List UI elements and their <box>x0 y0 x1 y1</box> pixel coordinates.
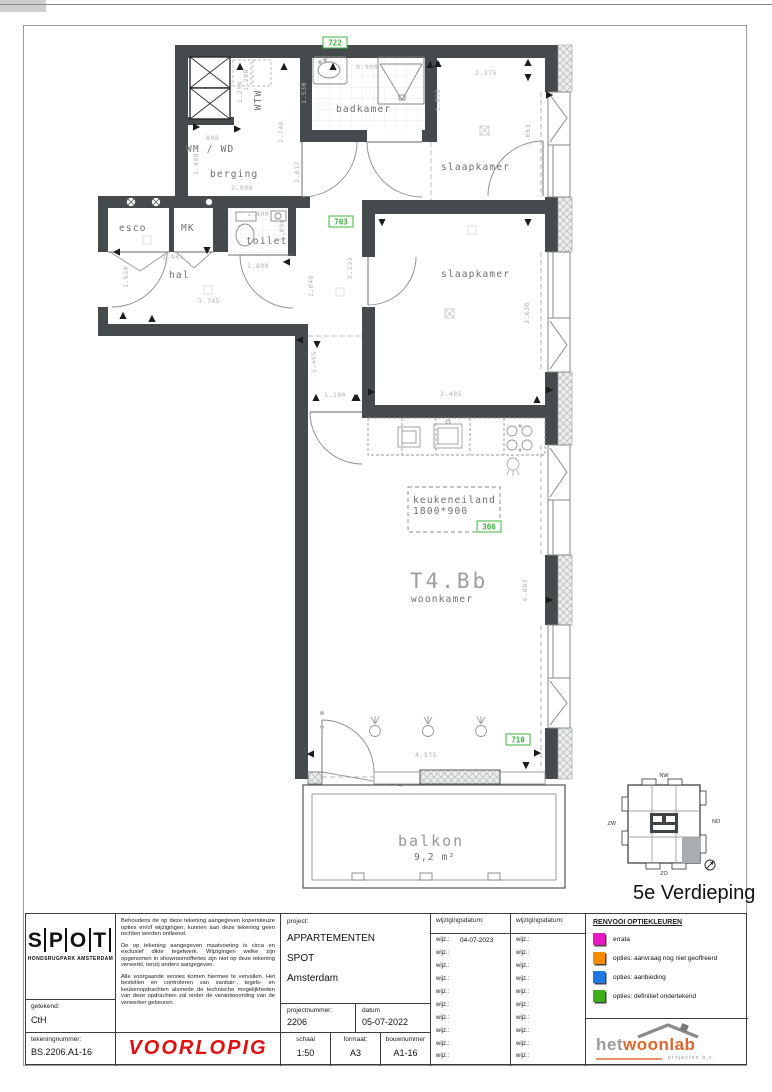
renvooi-title: RENVOOI OPTIEKLEUREN <box>586 914 748 926</box>
wijziging-row: wijz.: <box>511 1024 585 1037</box>
north-arrow-icon <box>705 860 715 870</box>
project-line: Amsterdam <box>287 973 424 984</box>
datum-label: datum <box>362 1007 424 1014</box>
dimension-label: 808 <box>206 134 219 142</box>
room-label-hal: hal <box>169 270 190 281</box>
wijziging-row-label: wijz.: <box>436 989 460 995</box>
dimension-label: 2.017 <box>293 161 301 183</box>
disclaimer-paragraph: Alle voorgaande versies komen hiermee te… <box>121 974 275 1007</box>
wijziging-row-label: wijz.: <box>516 950 540 956</box>
spot-logo-letter: P <box>49 930 63 952</box>
window-opening-icon <box>550 321 567 369</box>
datum-cell: datum 05-07-2022 <box>356 1004 431 1033</box>
project-cell: project: APPARTEMENTEN SPOT Amsterdam <box>281 914 431 1004</box>
shaft <box>190 57 230 119</box>
dimension-label: 1.890 <box>247 262 269 270</box>
legend-item: opties: definitief ondertekend <box>593 990 748 1002</box>
legend-color-swatch <box>593 971 605 983</box>
title-block: SPOT HONDSRUGPARK AMSTERDAM Behoudens de… <box>25 913 747 1065</box>
socket-arrow-icon <box>524 74 531 81</box>
spot-logo-letter: S <box>28 930 42 952</box>
legend-item-label: opties: aanbieding <box>613 974 666 981</box>
dimension-label: 3.485 <box>440 390 462 398</box>
wijzigingen-header: wijzigingsdatum: <box>511 914 585 934</box>
getekend-label: getekend: <box>31 1003 110 1010</box>
label-keuken-size: 1800*900 <box>413 506 468 517</box>
projectnummer-label: projectnummer: <box>287 1007 349 1014</box>
formaat-label: formaat: <box>337 1036 374 1043</box>
label-balkon-area: 9,2 m² <box>414 852 456 863</box>
spot-logo: SPOT <box>26 928 115 952</box>
wijziging-row: wijz.: <box>511 947 585 960</box>
socket-arrow-icon <box>533 396 540 403</box>
wijziging-row: wijz.: <box>431 1024 510 1037</box>
schaal-value: 1:50 <box>287 1048 324 1058</box>
disclaimer-cell: Behoudens de op deze tekening aangegeven… <box>116 914 281 1033</box>
wijziging-row-label: wijz.: <box>516 1041 540 1047</box>
keyplan-highlighted-unit <box>682 837 700 863</box>
kitchen-counter <box>368 418 545 476</box>
wijziging-row: wijz.: <box>511 986 585 999</box>
wijziging-row: wijz.: <box>431 947 510 960</box>
wijziging-row: wijz.:04-07-2023 <box>431 934 510 947</box>
dimension-label: 1.498 <box>192 153 200 175</box>
wijziging-row: wijz.: <box>431 1011 510 1024</box>
woonlab-het: het <box>596 1035 623 1054</box>
dimension-label: 2.748 <box>277 121 285 143</box>
tekeningnummer-cell: tekeningnummer: BS.2206.A1-16 <box>26 1033 116 1066</box>
socket-arrow-icon <box>524 219 531 226</box>
spot-logo-subtitle: HONDSRUGPARK AMSTERDAM <box>26 956 115 962</box>
ceiling-lights <box>143 126 489 737</box>
socket-arrow-icon <box>378 219 385 226</box>
formaat-value: A3 <box>337 1048 374 1058</box>
wijziging-row-label: wijz.: <box>436 1015 460 1021</box>
window-opening-icon <box>550 448 567 497</box>
woonlab-logo: hetwoonlab <box>596 1035 695 1055</box>
voorlopig-stamp: VOORLOPIG <box>116 1033 281 1066</box>
legend-color-swatch <box>593 952 605 964</box>
wijziging-row-label: wijz.: <box>436 1028 460 1034</box>
socket-arrow-icon <box>522 762 529 769</box>
wijziging-row-label: wijz.: <box>516 976 540 982</box>
dimension-label: 1.100 <box>324 391 346 399</box>
unit-title: T4.Bb <box>410 569 488 593</box>
bouwnummer-value: A1-16 <box>383 1048 428 1058</box>
wijziging-row-label: wijz.: <box>516 963 540 969</box>
socket-arrow-icon <box>236 63 243 70</box>
legend-item: errata <box>593 933 748 945</box>
dimension-label: 1.090 <box>278 219 286 241</box>
woonlab-logo-cell: hetwoonlab projecten b.v. <box>586 1019 748 1066</box>
compass-nw: NW <box>659 773 669 779</box>
label-keukeneiland: keukeneiland <box>413 495 496 506</box>
wijziging-row: wijz.: <box>511 1050 585 1063</box>
option-tag-703: 703 <box>334 218 348 227</box>
wijziging-row-label: wijz.: <box>436 963 460 969</box>
window-opening-icon <box>550 681 567 725</box>
wijziging-row-label: wijz.: <box>436 1053 460 1059</box>
socket-arrow-icon <box>283 258 290 265</box>
dimension-label: 3.630 <box>523 302 531 324</box>
dimension-label: 1.465 <box>310 351 318 373</box>
wijziging-row-label: wijz.: <box>516 937 540 943</box>
spot-logo-bar <box>109 928 111 952</box>
room-label-mk: MK <box>181 223 195 234</box>
dimension-label: 1.040 <box>307 275 315 297</box>
option-tags: 722 703 306 710 <box>323 37 530 745</box>
room-label-wtw: WTW <box>253 90 264 111</box>
socket-arrow-icon <box>203 247 210 254</box>
option-tag-306: 306 <box>482 523 496 532</box>
dimension-label: 1.945 <box>162 253 184 261</box>
wijziging-row-label: wijz.: <box>516 1002 540 1008</box>
compass-zo: ZO <box>660 871 668 877</box>
dimension-label: 1.250 <box>236 81 244 103</box>
option-tag-710: 710 <box>511 736 525 745</box>
wijziging-row-label: wijz.: <box>436 976 460 982</box>
dimension-label: 0.900 <box>356 63 378 71</box>
dimension-label: 1.490 <box>247 210 269 218</box>
bouwnummer-label: bouwnummer <box>383 1036 428 1043</box>
compass-no: NO <box>712 819 721 825</box>
room-label-berging: berging <box>210 169 258 180</box>
socket-arrow-icon <box>119 312 126 319</box>
tekeningnummer-value: BS.2206.A1-16 <box>31 1047 110 1057</box>
window-opening-icon <box>550 95 567 142</box>
legend-color-swatch <box>593 990 605 1002</box>
project-label: project: <box>287 918 424 925</box>
spot-logo-bar <box>89 928 91 952</box>
room-label-balkon: balkon <box>398 832 464 850</box>
socket-arrow-icon <box>534 749 541 756</box>
wijziging-row-value: 04-07-2023 <box>460 937 493 944</box>
spot-logo-letter: T <box>93 930 106 952</box>
legend-color-swatch <box>593 933 605 945</box>
wijziging-row-label: wijz.: <box>436 1041 460 1047</box>
tiled-floors <box>228 58 425 253</box>
legend-item-label: opties: aanvraag nog niet geoffreerd <box>613 955 717 962</box>
room-label-slaapkamer-2: slaapkamer <box>441 269 510 280</box>
wijziging-row: wijz.: <box>511 973 585 986</box>
datum-value: 05-07-2022 <box>362 1017 424 1027</box>
tekeningnummer-label: tekeningnummer: <box>31 1036 110 1043</box>
wijziging-row-label: wijz.: <box>516 1015 540 1021</box>
wijziging-row: wijz.: <box>511 960 585 973</box>
socket-arrow-icon <box>234 125 241 132</box>
keyplan: NW ZW NO ZO <box>607 773 721 877</box>
woonlab-underline <box>596 1058 662 1060</box>
dimension-label: 1.530 <box>300 82 308 104</box>
wijziging-row: wijz.: <box>511 1037 585 1050</box>
disclaimer-paragraph: Behoudens de op deze tekening aangegeven… <box>121 918 275 938</box>
wijziging-row: wijz.: <box>511 998 585 1011</box>
wijzigingen-column-1: wijzigingsdatum: wijz.:04-07-2023wijz.:w… <box>431 914 511 1066</box>
compass-zw: ZW <box>607 821 616 827</box>
dimension-label: 2.375 <box>475 69 497 77</box>
projectnummer-cell: projectnummer: 2206 <box>281 1004 356 1033</box>
wijziging-row-label: wijz.: <box>516 1053 540 1059</box>
disclaimer-paragraph: De op tekening aangegeven maatvoering is… <box>121 943 275 969</box>
room-label-badkamer: badkamer <box>336 104 391 115</box>
wijziging-row-label: wijz.: <box>436 1002 460 1008</box>
dimension-label: 1.830 <box>434 89 442 111</box>
wijzigingen-header: wijzigingsdatum: <box>431 914 510 934</box>
room-label-slaapkamer-1: slaapkamer <box>441 162 510 173</box>
floor-title: 5e Verdieping <box>633 882 755 904</box>
dimension-label: 3.745 <box>198 297 220 305</box>
dimension-label: 3.063 <box>524 124 532 146</box>
legend-item: opties: aanvraag nog niet geoffreerd <box>593 952 748 964</box>
wijziging-row: wijz.: <box>431 1037 510 1050</box>
wijziging-row-label: wijz.: <box>516 989 540 995</box>
socket-arrow-icon <box>312 394 319 401</box>
project-line: APPARTEMENTEN <box>287 933 424 944</box>
dimension-label: 1.930 <box>122 266 130 288</box>
wijziging-row-label: wijz.: <box>436 937 460 943</box>
spot-logo-letter: O <box>70 930 86 952</box>
legend-item-label: opties: definitief ondertekend <box>613 993 696 1000</box>
renvooi-legend: RENVOOI OPTIEKLEUREN errataopties: aanvr… <box>586 914 748 1019</box>
dimension-label: 2.908 <box>231 184 253 192</box>
wijziging-row-label: wijz.: <box>436 950 460 956</box>
dimension-label: 5.133 <box>346 257 354 279</box>
getekend-value: CtH <box>31 1015 110 1025</box>
wijziging-row: wijz.: <box>431 973 510 986</box>
wijzigingen-column-2: wijzigingsdatum: wijz.:wijz.:wijz.:wijz.… <box>511 914 586 1066</box>
balcony-sill <box>308 770 545 784</box>
socket-arrow-icon <box>313 341 320 348</box>
floor-plan-drawing: WTW WM / WD berging badkamer slaapkamer … <box>0 0 772 910</box>
project-line: SPOT <box>287 953 424 964</box>
floorplan-sheet: { "plan": { "unit_title": "T4.Bb", "labe… <box>0 0 772 1092</box>
dimension-label: 6.893 <box>521 579 529 601</box>
wijziging-row: wijz.: <box>431 998 510 1011</box>
socket-arrow-icon <box>280 63 287 70</box>
formaat-cell: formaat: A3 <box>331 1033 381 1066</box>
logo-cell: SPOT HONDSRUGPARK AMSTERDAM <box>26 914 116 1000</box>
socket-arrow-icon <box>524 59 531 66</box>
schaal-label: schaal <box>287 1036 324 1043</box>
legend-item-label: errata <box>613 936 630 943</box>
projectnummer-value: 2206 <box>287 1017 349 1027</box>
woonlab-woonlab: woonlab <box>623 1035 695 1054</box>
schaal-cell: schaal 1:50 <box>281 1033 331 1066</box>
wijziging-row: wijz.: <box>431 986 510 999</box>
room-label-woonkamer: woonkamer <box>411 594 473 605</box>
option-tag-722: 722 <box>328 39 342 48</box>
socket-arrow-icon <box>148 315 155 322</box>
legend-item: opties: aanbieding <box>593 971 748 983</box>
spot-logo-bar <box>65 928 67 952</box>
getekend-cell: getekend: CtH <box>26 1000 116 1033</box>
room-label-esco: esco <box>119 223 147 234</box>
wijziging-row-label: wijz.: <box>516 1028 540 1034</box>
wijziging-row: wijz.: <box>431 1050 510 1063</box>
wijziging-row: wijz.: <box>431 960 510 973</box>
wijziging-row: wijz.: <box>511 934 585 947</box>
bouwnummer-cell: bouwnummer A1-16 <box>381 1033 431 1066</box>
woonlab-subtitle: projecten b.v. <box>668 1055 715 1061</box>
wijziging-row: wijz.: <box>511 1011 585 1024</box>
dimension-label: 4.575 <box>415 751 437 759</box>
spot-logo-bar <box>44 928 46 952</box>
